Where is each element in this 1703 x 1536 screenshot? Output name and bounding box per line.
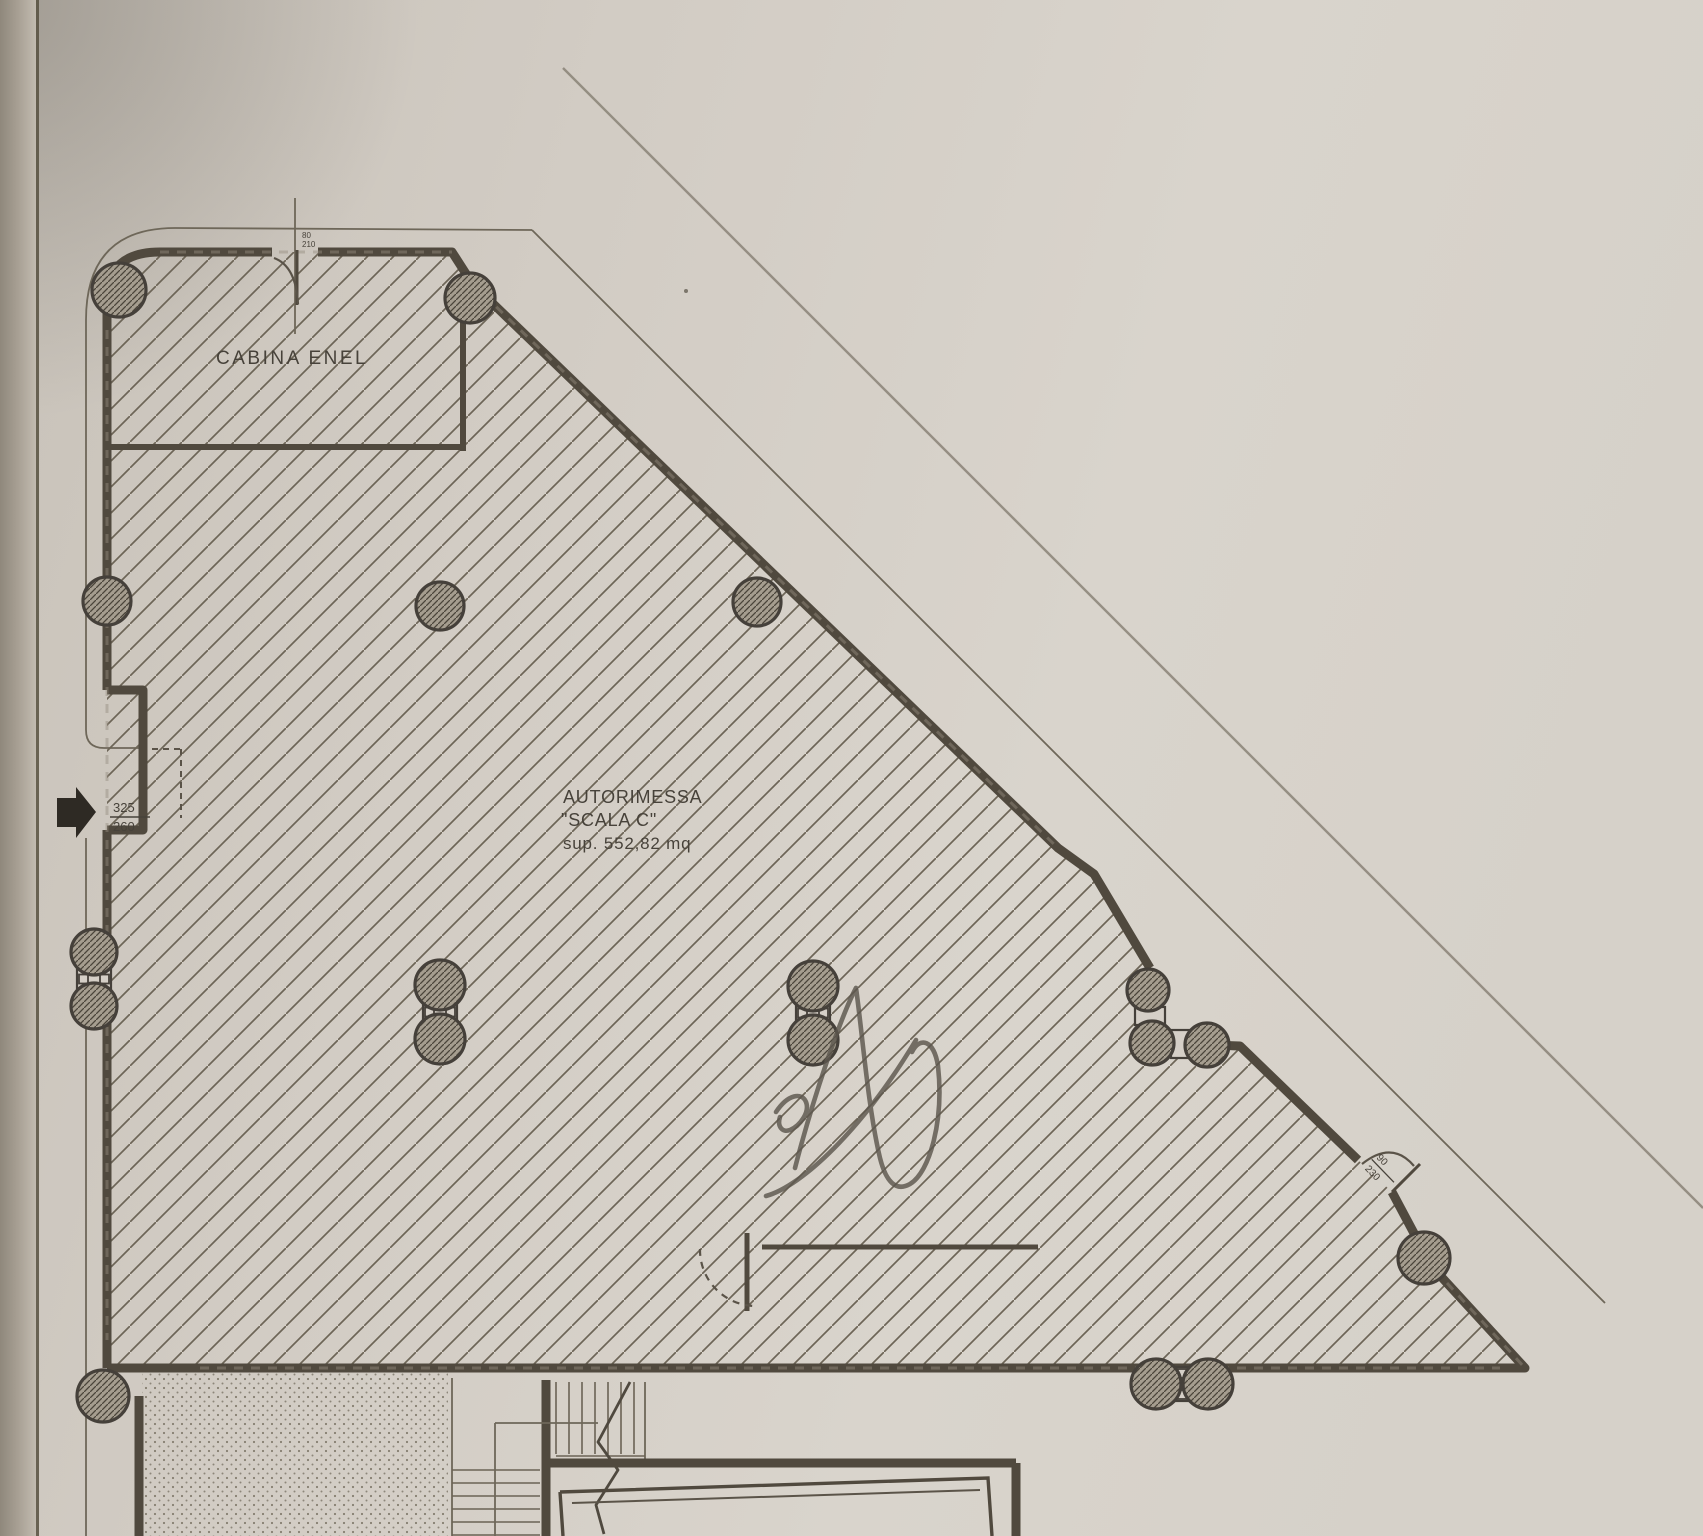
left-entrance-width-label: 325 (113, 800, 135, 815)
scanned-floor-plan-page: 80 210 325 260 90 230 (0, 0, 1703, 1536)
garage-label-line2: "SCALA C" (561, 810, 657, 830)
left-entrance-height-label: 260 (113, 819, 135, 834)
top-door-height-label: 210 (302, 240, 316, 249)
page-edge-line (36, 0, 39, 1536)
cabina-enel-label: CABINA ENEL (216, 348, 368, 369)
garage-label-line3: sup. 552,82 mq (563, 834, 691, 853)
lower-room-dotted-floor (142, 1373, 448, 1536)
page-edge-shadow (0, 0, 36, 1536)
top-door-width-label: 80 (302, 231, 311, 240)
garage-label-line1: AUTORIMESSA (563, 787, 703, 807)
